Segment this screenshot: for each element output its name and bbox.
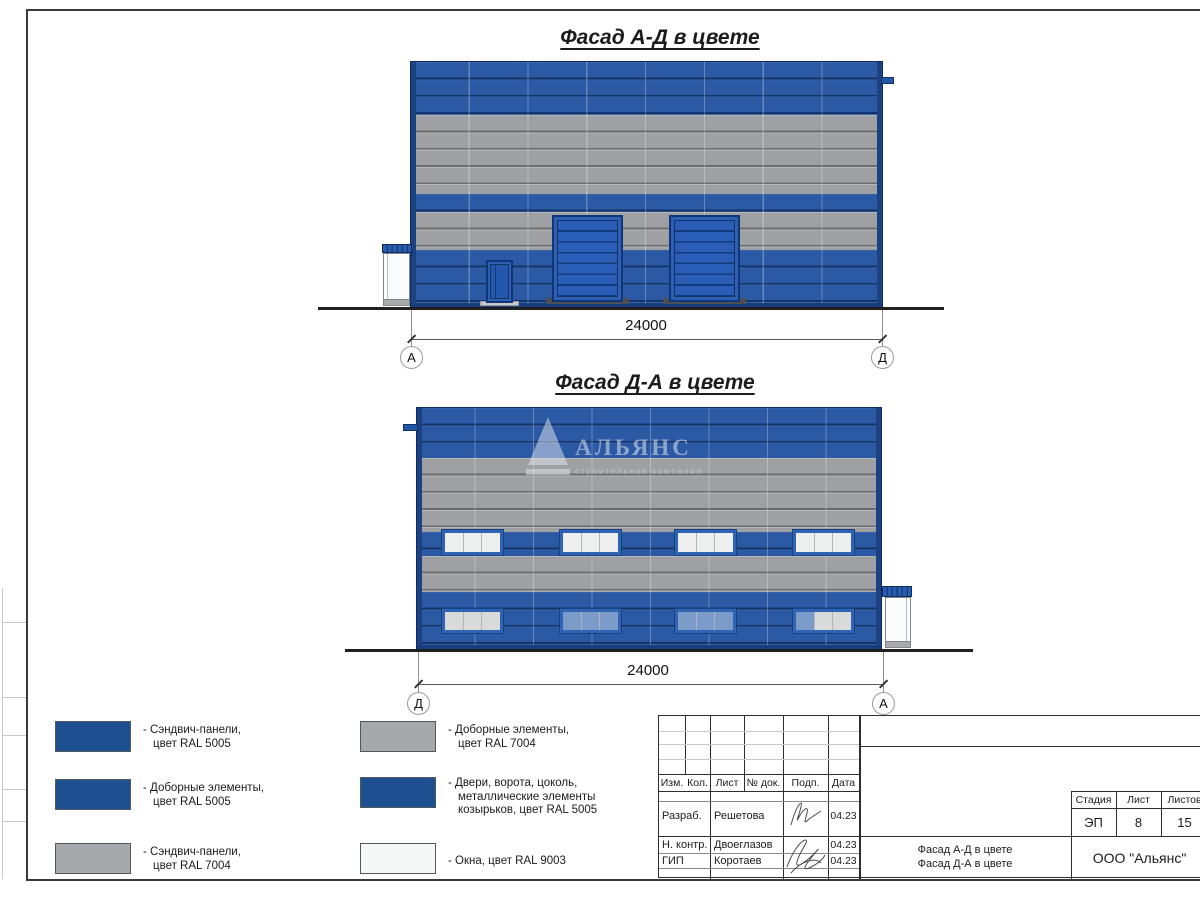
axis-marker-a: А [400, 346, 423, 369]
axis-marker-d: Д [407, 692, 430, 715]
axis-marker-d: Д [871, 346, 894, 369]
margin-cell-line [2, 821, 26, 822]
tb-role: ГИП [662, 853, 710, 869]
tb-role: Н. контр. [662, 836, 710, 853]
gate-slats [557, 220, 618, 297]
axis-marker-a: А [872, 692, 895, 715]
tb-date: 04.23 [828, 853, 859, 869]
window [560, 609, 621, 633]
facade-da-title-text: Фасад Д-А в цвете [555, 371, 754, 394]
legend-swatch [360, 777, 436, 808]
tb-stage-value: ЭП [1071, 808, 1116, 836]
dimension-line [411, 339, 883, 340]
signature-icon [781, 833, 829, 877]
sectional-gate [552, 215, 623, 302]
extension-line [882, 310, 883, 348]
tb-doc-name: Фасад А-Д в цвете Фасад Д-А в цвете [859, 843, 1071, 871]
tb-header-izm: Изм. [659, 774, 685, 791]
legend-swatch [360, 843, 436, 874]
corner-trim-left [417, 408, 422, 649]
tb-header-ndok: № док. [744, 774, 783, 791]
legend-swatch [55, 843, 131, 874]
frame-bottom-border [26, 879, 1200, 881]
window [560, 530, 621, 555]
canopy-roof [382, 244, 412, 253]
legend-label: - Сэндвич-панели, цвет RAL 5005 [143, 724, 353, 751]
tb-sheets-value: 15 [1161, 808, 1200, 836]
structure-post [906, 598, 907, 642]
window [793, 609, 854, 633]
window [675, 530, 736, 555]
margin-cell-line [2, 697, 26, 698]
facade-ad-title-text: Фасад А-Д в цвете [560, 26, 759, 49]
door-leaf [490, 264, 509, 299]
tb-name: Решетова [714, 806, 782, 826]
legend-label: - Сэндвич-панели, цвет RAL 7004 [143, 846, 353, 873]
window [442, 609, 503, 633]
panel-band-gray [417, 556, 881, 592]
tb-header-kol: Кол. [685, 774, 710, 791]
structure-base [886, 641, 910, 647]
window [675, 609, 736, 633]
panel-band-gray [411, 115, 882, 194]
side-structure [885, 597, 911, 648]
tb-name: Двоеглазов [714, 836, 782, 853]
frame-left-border [26, 9, 28, 881]
tb-date: 04.23 [828, 836, 859, 853]
corner-trim-right [876, 408, 881, 649]
roof-flashing-tab [403, 424, 418, 431]
facade-ad-title: Фасад А-Д в цвете [455, 26, 865, 50]
frame-top-border [26, 9, 1200, 11]
tb-company: ООО "Альянс" [1071, 836, 1200, 879]
structure-base [384, 299, 409, 305]
legend-swatch [55, 721, 131, 752]
drawing-sheet: { "sheet": { "facade1_title": "Фасад А-Д… [0, 0, 1200, 900]
window [793, 530, 854, 555]
corner-trim-right [877, 62, 882, 307]
tb-name: Коротаев [714, 853, 782, 869]
legend-label: - Окна, цвет RAL 9003 [448, 855, 668, 869]
tb-header-data: Дата [828, 774, 859, 791]
title-block: Изм. Кол. Лист № док. Подп. Дата Разраб.… [658, 715, 1200, 878]
margin-cell-line [2, 735, 26, 736]
roof-flashing-tab [881, 77, 894, 84]
tb-date: 04.23 [828, 808, 859, 824]
extension-line [418, 652, 419, 694]
corner-trim-left [411, 62, 416, 307]
legend-label: - Доборные элементы, цвет RAL 7004 [448, 724, 668, 751]
door-stile [495, 264, 496, 299]
dimension-line [418, 684, 884, 685]
legend-label: - Двери, ворота, цоколь, металлические э… [448, 777, 668, 818]
watermark-brand: АЛЬЯНС [575, 435, 692, 461]
extension-line [883, 652, 884, 694]
legend-swatch [55, 779, 131, 810]
tb-sheets-label: Листов [1161, 791, 1200, 808]
watermark-tagline: строительная компания [575, 466, 703, 476]
panel-band-blue [411, 62, 882, 115]
facade-da-title: Фасад Д-А в цвете [450, 371, 860, 395]
tb-header-list: Лист [710, 774, 744, 791]
panel-band-blue [411, 250, 882, 306]
extension-line [411, 310, 412, 348]
panel-band-blue [411, 194, 882, 212]
alliance-logo-watermark [526, 417, 573, 477]
facade-ad-drawing [410, 61, 883, 308]
window [442, 530, 503, 555]
side-structure [383, 253, 410, 306]
entrance-door [486, 260, 513, 303]
margin-cell-line [2, 588, 3, 879]
dimension-value: 24000 [546, 317, 746, 334]
facade-da-drawing: АЛЬЯНС строительная компания [416, 407, 882, 650]
signature-icon [783, 795, 828, 833]
legend-label: - Доборные элементы, цвет RAL 5005 [143, 782, 353, 809]
canopy-roof [882, 586, 912, 597]
tb-role: Разраб. [662, 806, 710, 826]
margin-cell-line [2, 622, 26, 623]
tb-stage-label: Стадия [1071, 791, 1116, 808]
structure-post [387, 254, 388, 300]
dimension-value: 24000 [548, 662, 748, 679]
panel-band-gray [411, 212, 882, 250]
tb-sheet-label: Лист [1116, 791, 1161, 808]
sectional-gate [669, 215, 740, 302]
margin-cell-line [2, 789, 26, 790]
tb-header-podp: Подп. [783, 774, 828, 791]
legend-swatch [360, 721, 436, 752]
gate-slats [674, 220, 735, 297]
tb-sheet-value: 8 [1116, 808, 1161, 836]
ground-line [345, 649, 973, 652]
